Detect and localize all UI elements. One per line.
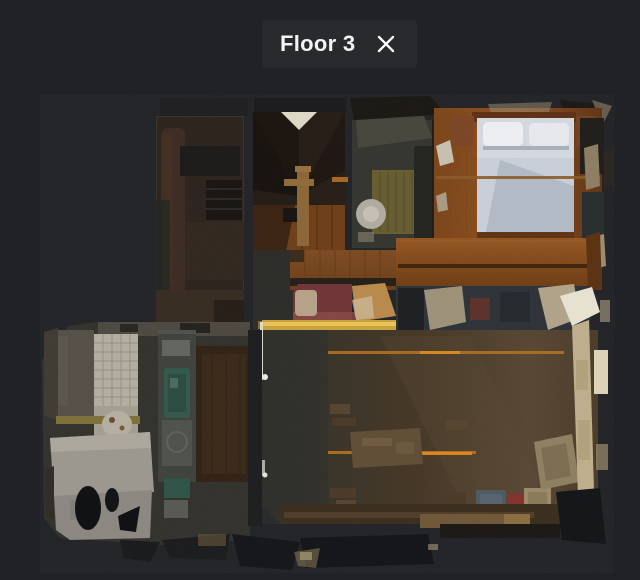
close-icon — [375, 33, 397, 55]
floorplan-svg[interactable] — [0, 0, 640, 580]
floor-label: Floor 3 — [280, 31, 355, 57]
floorplan-canvas[interactable] — [0, 0, 640, 580]
close-button[interactable] — [373, 31, 399, 57]
floor-viewer-screen: Floor 3 — [0, 0, 640, 580]
floor-chip[interactable]: Floor 3 — [262, 20, 417, 68]
scan-grain-overlay — [40, 95, 615, 573]
